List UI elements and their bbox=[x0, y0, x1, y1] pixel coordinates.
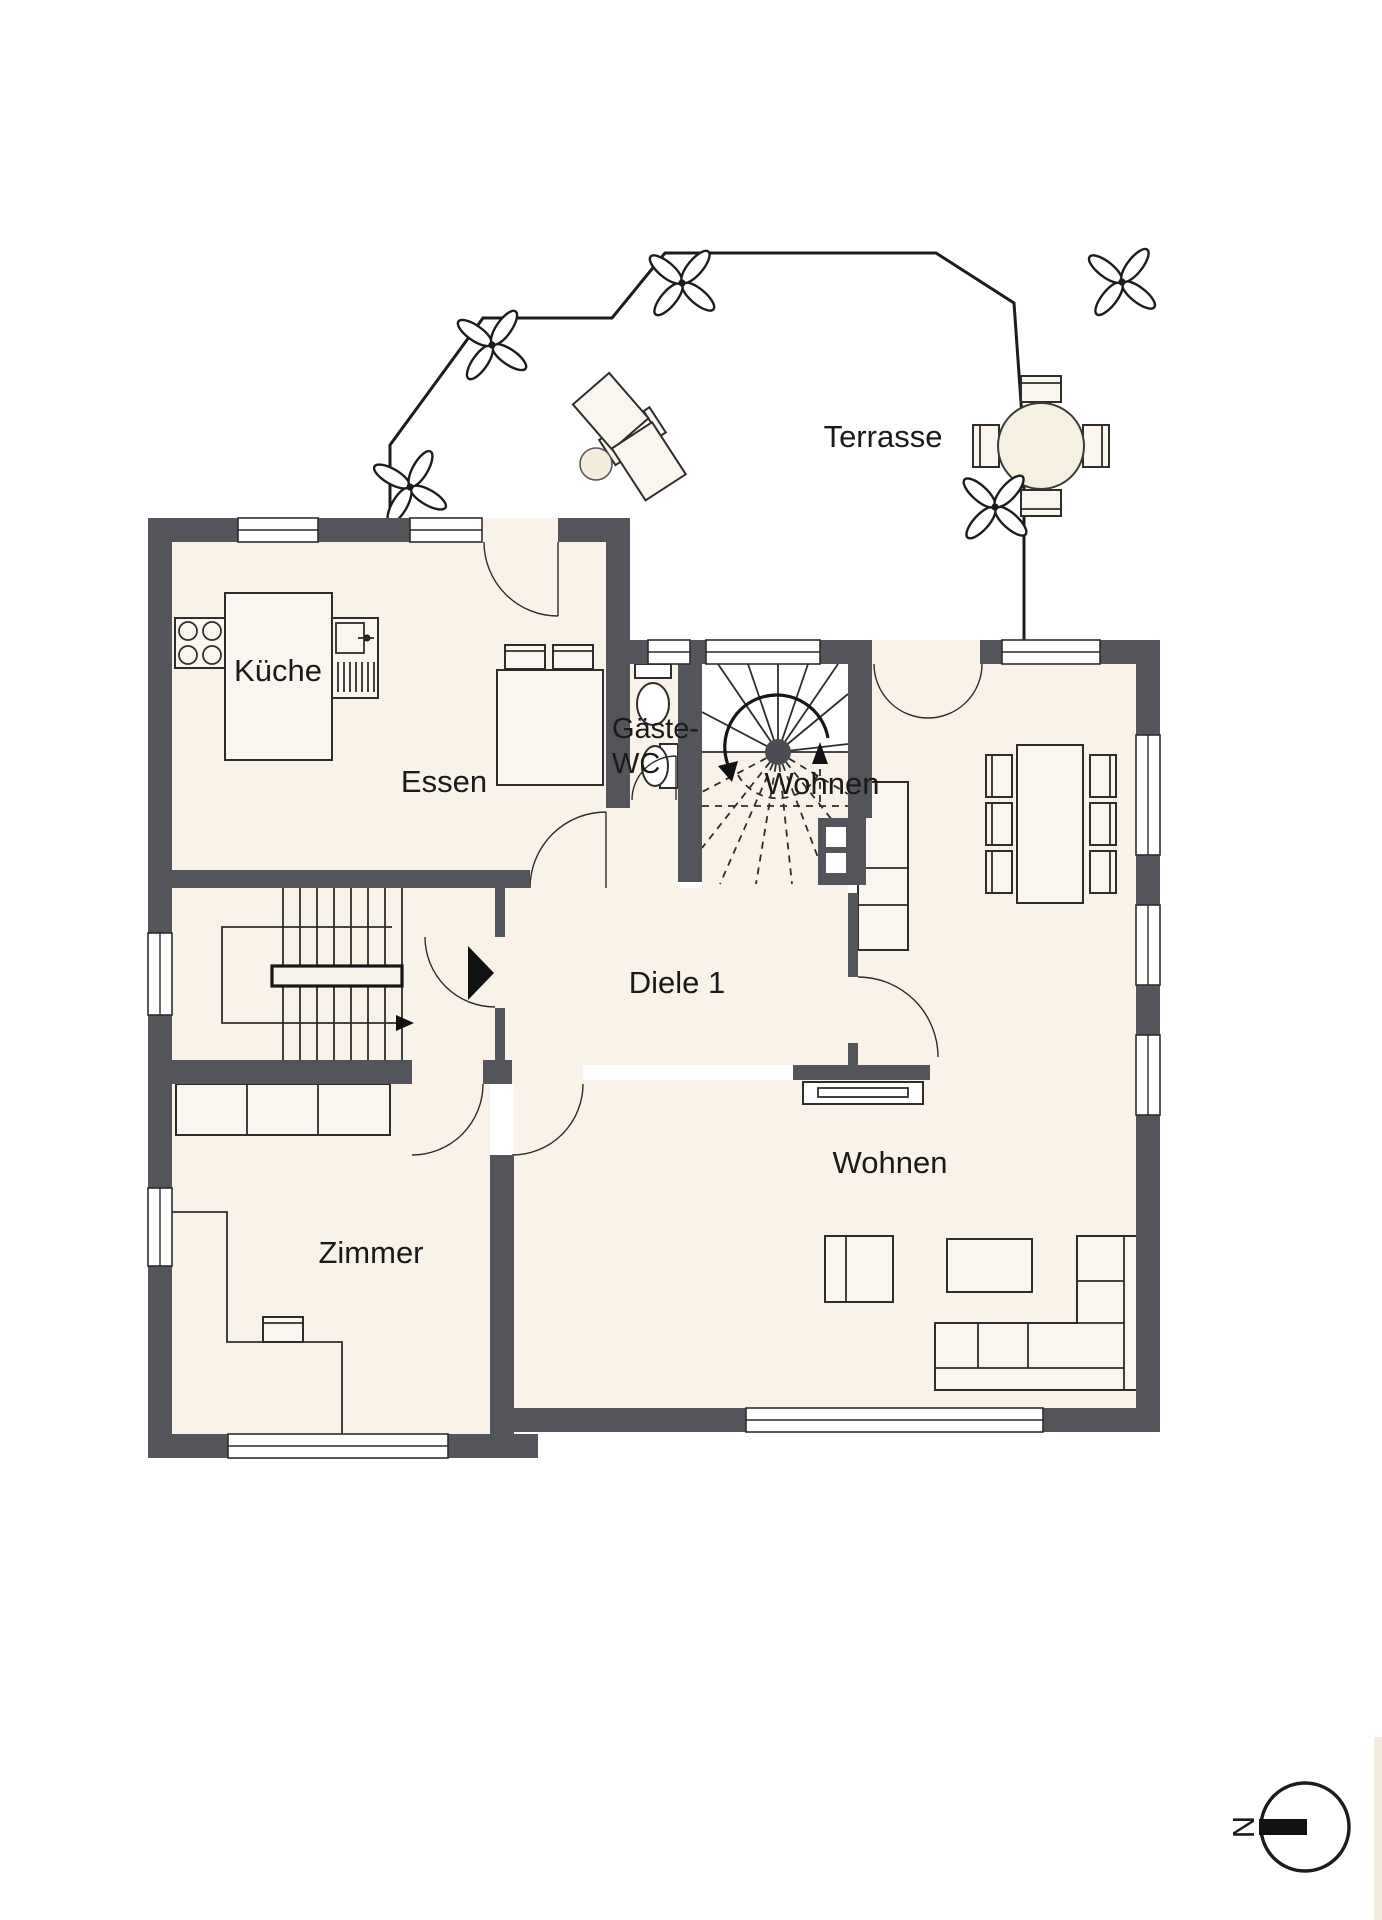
window bbox=[1136, 905, 1160, 985]
chair bbox=[986, 803, 1012, 845]
drainboard bbox=[338, 662, 374, 692]
toilet-tank bbox=[635, 664, 671, 678]
window bbox=[706, 640, 820, 664]
chimney-flue bbox=[826, 853, 846, 873]
chair bbox=[1090, 851, 1116, 893]
floor-plan: Terrasse Küche Essen Gäste- WC Wohnen Di… bbox=[0, 0, 1382, 1920]
stair-newel-post bbox=[765, 739, 791, 765]
wardrobe bbox=[176, 1084, 390, 1135]
window bbox=[228, 1434, 448, 1458]
terrace-side-table bbox=[580, 448, 612, 480]
window bbox=[1136, 1035, 1160, 1115]
terrace-round-table bbox=[998, 403, 1084, 489]
window bbox=[1002, 640, 1100, 664]
north-arrow-icon: N bbox=[1226, 1783, 1349, 1871]
coffee-table bbox=[947, 1239, 1032, 1292]
terrace-dining-set bbox=[973, 376, 1109, 516]
window bbox=[1136, 735, 1160, 855]
room-label-guest-wc: Gäste- bbox=[612, 713, 699, 745]
chair bbox=[553, 645, 593, 669]
page-edge-strip bbox=[1374, 1737, 1382, 1920]
desk-chair bbox=[263, 1317, 303, 1342]
window bbox=[746, 1408, 1043, 1432]
window bbox=[410, 518, 482, 542]
room-label-dining: Essen bbox=[401, 764, 487, 799]
chair bbox=[1090, 803, 1116, 845]
stair-landing-rail bbox=[272, 966, 402, 986]
dining-table bbox=[497, 670, 603, 785]
chair bbox=[986, 755, 1012, 797]
room-label-zimmer: Zimmer bbox=[318, 1235, 423, 1270]
terrace-lounger bbox=[569, 365, 691, 505]
room-label-guest-wc: WC bbox=[612, 748, 660, 780]
room-label-kitchen: Küche bbox=[234, 653, 322, 688]
window bbox=[148, 1188, 172, 1266]
window bbox=[148, 933, 172, 1015]
radiator bbox=[803, 1082, 923, 1104]
window bbox=[648, 640, 690, 664]
plant-icon bbox=[435, 288, 549, 402]
page: Terrasse Küche Essen Gäste- WC Wohnen Di… bbox=[0, 0, 1382, 1920]
chair bbox=[505, 645, 545, 669]
dining-table-large bbox=[1017, 745, 1083, 903]
plant-icon bbox=[1064, 224, 1179, 339]
north-label: N bbox=[1226, 1816, 1261, 1838]
room-label-hall: Diele 1 bbox=[629, 965, 726, 1000]
window bbox=[238, 518, 318, 542]
stove bbox=[175, 618, 225, 668]
room-label-living-lower: Wohnen bbox=[833, 1145, 948, 1180]
chair bbox=[986, 851, 1012, 893]
chimney-flue bbox=[826, 827, 846, 847]
room-label-terrace: Terrasse bbox=[824, 419, 943, 454]
chair bbox=[1090, 755, 1116, 797]
room-label-living-upper: Wohnen bbox=[765, 766, 880, 801]
armchair bbox=[825, 1236, 893, 1302]
